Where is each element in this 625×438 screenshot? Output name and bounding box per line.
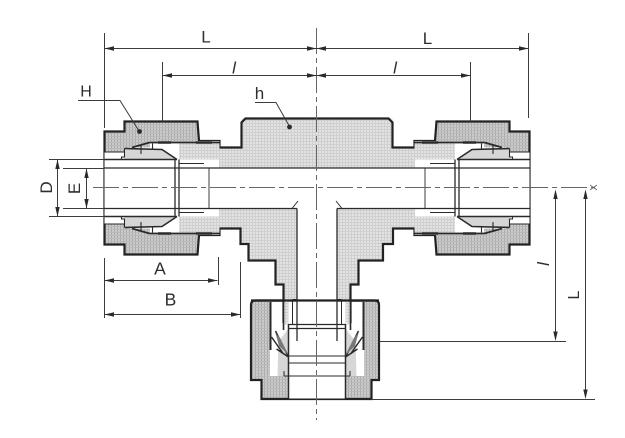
svg-text:B: B xyxy=(165,290,177,310)
svg-text:L: L xyxy=(566,290,583,299)
svg-text:D: D xyxy=(37,181,56,193)
svg-text:H: H xyxy=(80,84,92,101)
svg-text:L: L xyxy=(201,28,210,47)
svg-text:E: E xyxy=(65,183,84,194)
svg-text:L: L xyxy=(423,29,432,48)
svg-text:h: h xyxy=(255,84,264,103)
svg-text:A: A xyxy=(154,259,166,279)
